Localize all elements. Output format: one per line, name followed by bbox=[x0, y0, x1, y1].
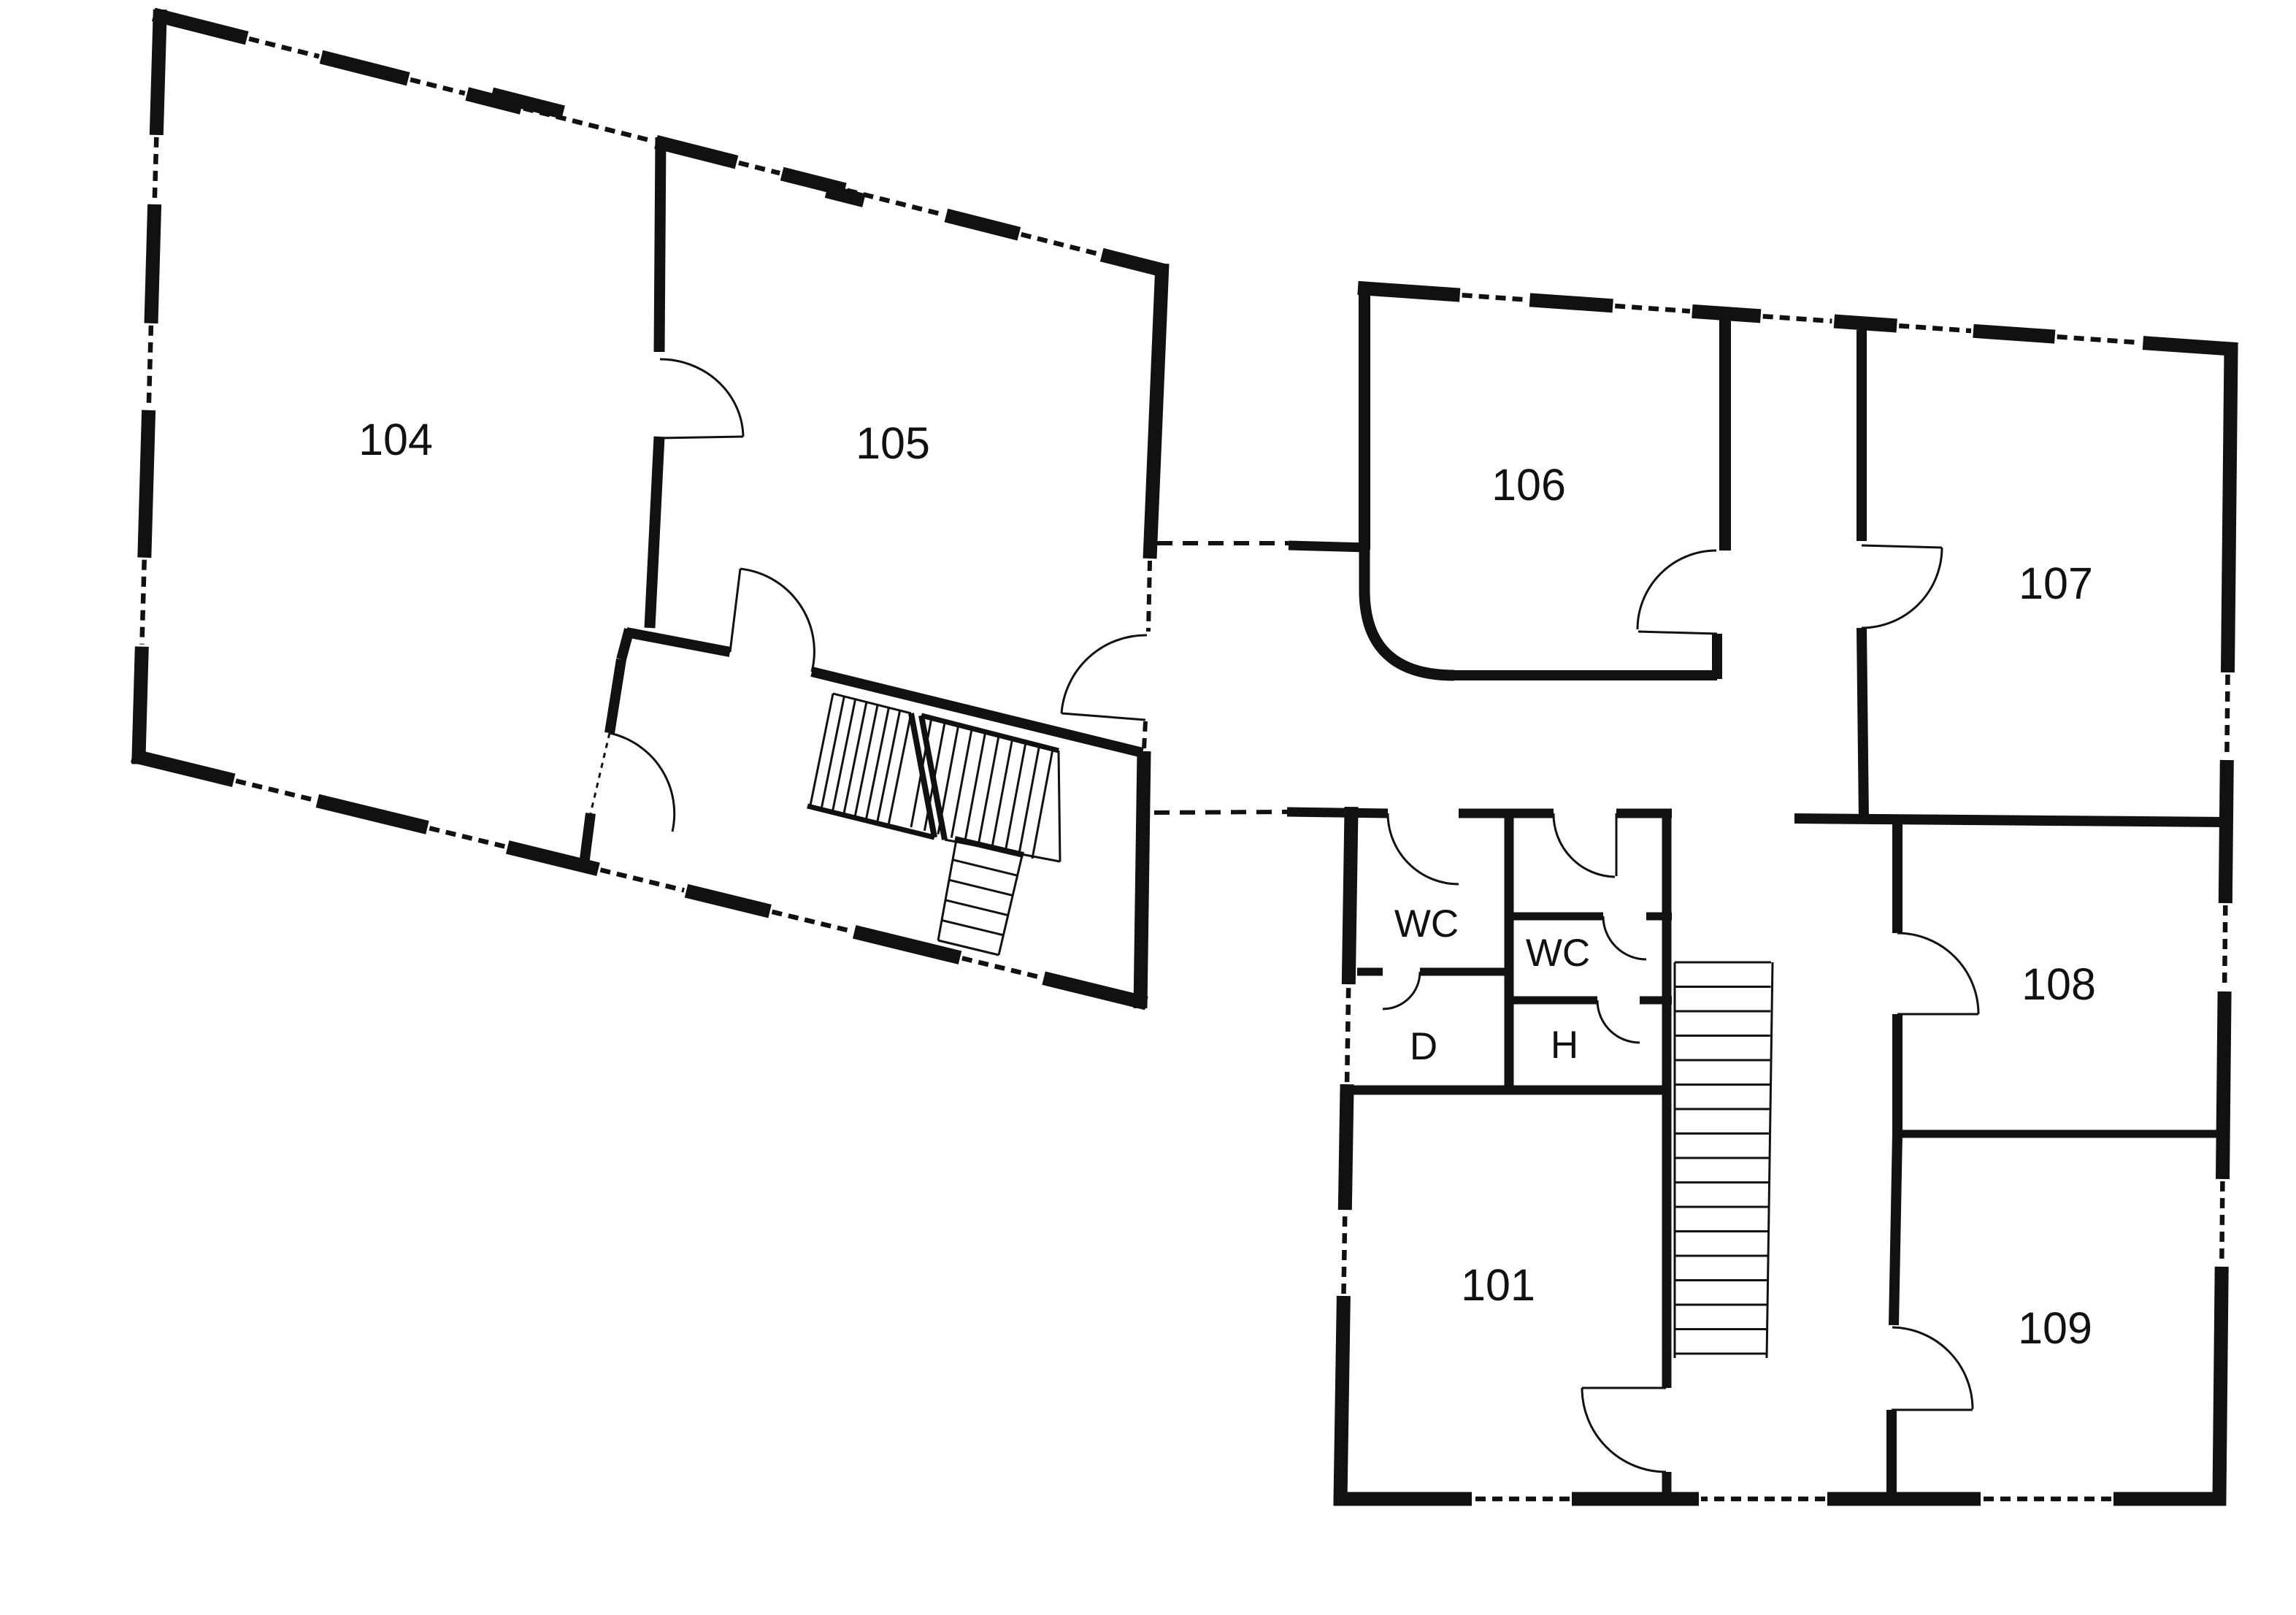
svg-text:D: D bbox=[1410, 1025, 1437, 1068]
svg-text:107: 107 bbox=[2019, 559, 2093, 608]
svg-text:104: 104 bbox=[358, 415, 433, 464]
svg-text:105: 105 bbox=[856, 418, 930, 468]
svg-text:106: 106 bbox=[1491, 460, 1566, 510]
svg-text:108: 108 bbox=[2022, 959, 2096, 1009]
svg-text:101: 101 bbox=[1461, 1260, 1535, 1310]
svg-text:WC: WC bbox=[1526, 932, 1590, 975]
svg-text:109: 109 bbox=[2018, 1303, 2092, 1353]
svg-text:H: H bbox=[1551, 1024, 1578, 1067]
svg-text:WC: WC bbox=[1394, 902, 1459, 945]
